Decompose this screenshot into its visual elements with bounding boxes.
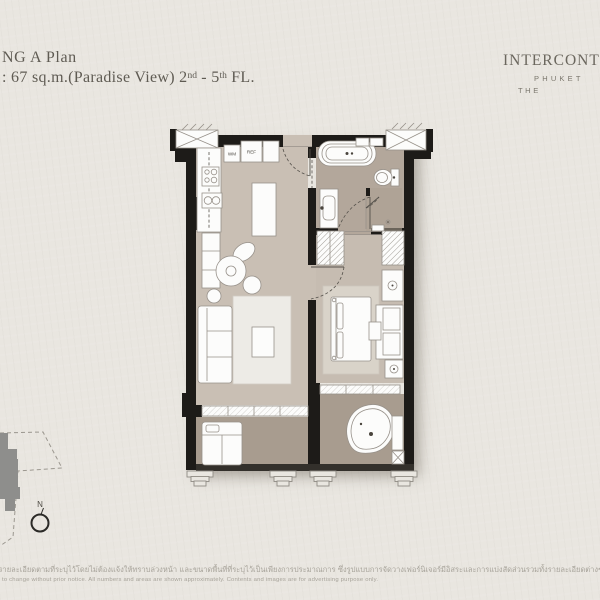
kitchen-island [252,183,276,236]
bench-table [369,322,381,340]
disclaimer-english: to change without prior notice. All numb… [2,577,378,583]
wm-label: WM [228,152,236,157]
north-label: N [37,500,43,509]
party-wall-hatch-right [392,123,422,129]
balcony-ledge [392,416,403,450]
entry-threshold-floor [283,135,312,147]
north-compass-icon: N [32,500,49,532]
disclaimer-thai: อรายละเอียดตามที่ระบุไว้โดยไม่ต้องแจ้งให… [0,564,600,576]
pantry-cabinet [263,141,279,162]
tall-cabinet [202,233,220,288]
tub-niche [356,138,369,146]
shower-floor [366,188,402,231]
dining-chair [207,289,221,303]
site-key-plan [0,432,62,546]
bedroom-doorway-floor [308,265,316,300]
dining-table [216,256,246,286]
party-wall-hatch-left [182,124,212,130]
site-buildings [0,433,20,511]
dining-chair [243,276,261,294]
tub-niche [370,138,383,146]
living-room [198,296,291,384]
ref-label: REF [247,150,256,155]
cooktop [202,167,219,186]
sofa [198,306,232,383]
coffee-table [252,327,274,357]
wall-footings [187,471,417,486]
floor-plan-svg: N [0,0,600,600]
shower-step [372,225,384,231]
